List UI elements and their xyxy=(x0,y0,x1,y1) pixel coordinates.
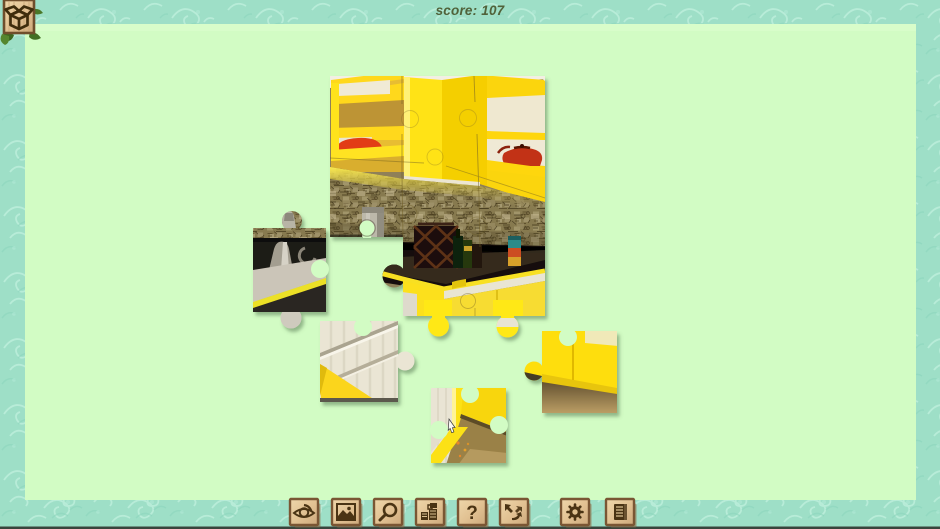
svg-text:score: 107: score: 107 xyxy=(436,3,506,18)
svg-text:?: ? xyxy=(466,503,478,524)
